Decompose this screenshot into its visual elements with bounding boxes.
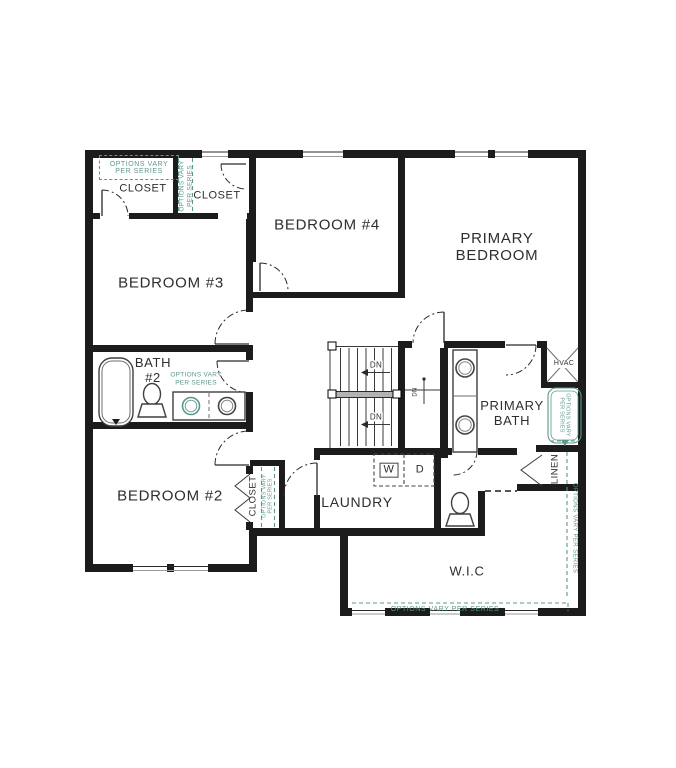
room-label-bath-2: BATH #2 — [135, 356, 171, 386]
options-vary-note-right: OPTIONS VARY PER SERIES — [571, 483, 578, 573]
room-label-bedroom-2: BEDROOM #2 — [117, 487, 223, 504]
down-arrow — [361, 369, 390, 376]
room-label-wic: W.I.C — [449, 565, 484, 580]
room-label-linen: LINEN — [551, 454, 562, 484]
room-label-closet-left: CLOSET — [119, 183, 166, 196]
room-label-hvac: HVAC — [553, 360, 575, 368]
options-vary-note: OPTIONS VARY PER SERIES — [99, 155, 179, 180]
stairs-dn-label-upper: DN — [369, 360, 383, 369]
bathtub — [99, 358, 133, 426]
floor-plan-drawing — [0, 0, 676, 768]
vanity-sinks — [173, 392, 245, 420]
options-vary-note-vertical: OPTIONS VARY PER SERIES — [178, 160, 193, 211]
options-vary-note-wic: OPTIONS VARY PER SERIES — [391, 606, 500, 614]
options-vary-note-tub: OPTIONS VARY PER SERIES — [558, 393, 571, 436]
room-label-laundry: LAUNDRY — [321, 494, 393, 510]
room-label-bedroom-3: BEDROOM #3 — [118, 274, 224, 291]
room-label-bedroom-4: BEDROOM #4 — [274, 216, 380, 233]
room-label-closet-2: CLOSET — [249, 476, 260, 517]
floor-plan-page: OPTIONS VARY PER SERIES CLOSET OPTIONS V… — [0, 0, 676, 768]
toilet — [446, 493, 474, 527]
newel-post — [328, 342, 336, 350]
room-label-closet-right: CLOSET — [193, 190, 240, 203]
toilet — [138, 384, 166, 418]
dryer-symbol: D — [416, 464, 425, 477]
down-arrow — [361, 421, 390, 428]
options-vary-line2: PER SERIES — [110, 168, 169, 175]
room-label-primary-bath: PRIMARY BATH — [480, 399, 544, 429]
newel-post — [393, 390, 401, 398]
washer-symbol: W — [380, 463, 399, 478]
options-vary-note-closet-2: OPTIONS VARY PER SERIES — [262, 474, 275, 517]
stair-rail — [334, 392, 398, 398]
options-vary-note-bath2: OPTIONS VARY PER SERIES — [170, 371, 221, 386]
newel-post — [328, 390, 336, 398]
room-label-primary-bedroom: PRIMARY BEDROOM — [456, 230, 539, 265]
stairs-dn-label-lower: DN — [369, 412, 383, 421]
stairs-dn-label-overlook: DN — [413, 387, 420, 396]
linen-door — [521, 455, 542, 486]
staircase — [328, 342, 440, 448]
options-vary-line1: OPTIONS VARY — [110, 161, 169, 168]
primary-vanity — [453, 350, 477, 452]
